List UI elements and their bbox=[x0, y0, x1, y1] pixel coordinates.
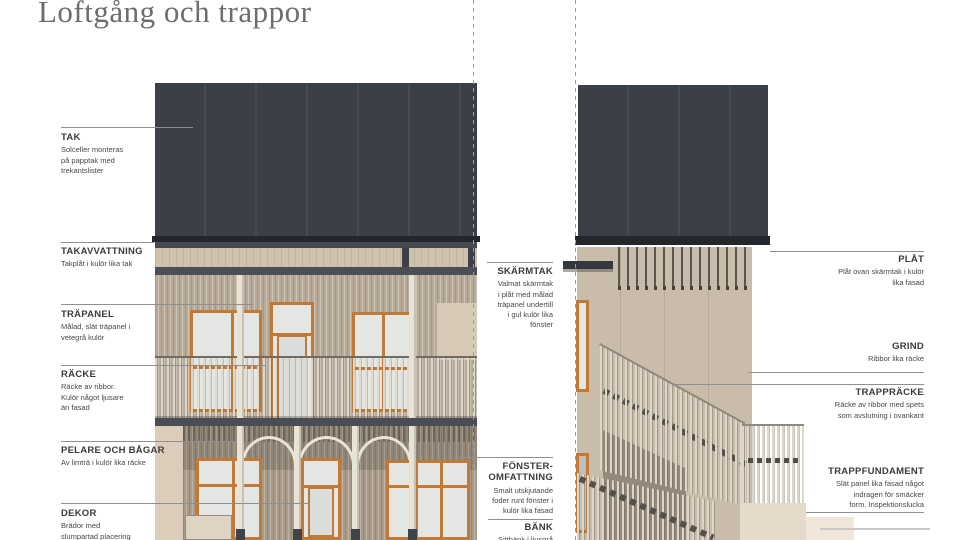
leader-line-grind bbox=[748, 372, 924, 373]
door-at-section-cut bbox=[576, 300, 589, 392]
annotation-desc: Räcke av ribbor med spets som avslutning… bbox=[770, 400, 924, 420]
annotation-label: BÄNK bbox=[425, 522, 553, 533]
leader-line-takavvattning bbox=[61, 242, 154, 243]
leader-line-tak bbox=[61, 127, 193, 128]
canopy-shadow bbox=[563, 269, 613, 272]
annotation-trappfundament: TRAPPFUNDAMENT Slät panel lika fasad någ… bbox=[770, 466, 924, 510]
annotation-pelare-och-bagar: PELARE OCH BÅGAR Av limträ i kulör lika … bbox=[61, 445, 201, 469]
leader-line-fonsteromfattning bbox=[458, 457, 553, 458]
annotation-desc: Målad, slät träpanel i vetegrå kulör bbox=[61, 322, 191, 342]
annotation-skarmtak: SKÄRMTAK Valmat skärmtak i plåt med måla… bbox=[425, 266, 553, 330]
annotation-label: TRÄPANEL bbox=[61, 309, 191, 320]
annotation-label: SKÄRMTAK bbox=[425, 266, 553, 277]
annotation-label: PLÅT bbox=[770, 254, 924, 265]
annotation-fonsteromfattning: FÖNSTER- OMFATTNING Smalt utskjutande fo… bbox=[425, 461, 553, 516]
left-fascia-band bbox=[155, 248, 477, 267]
annotation-grind: GRIND Ribbor lika räcke bbox=[770, 341, 924, 365]
annotation-desc: Sittbänk i ljusgrå bbox=[425, 535, 553, 540]
leader-line-racke bbox=[61, 365, 265, 366]
entrance-canopy-skarmtak bbox=[563, 261, 613, 269]
leader-line-trappracke bbox=[672, 384, 924, 385]
annotation-label: RÄCKE bbox=[61, 369, 191, 380]
pillar-base bbox=[408, 529, 417, 540]
leader-line-plat bbox=[770, 251, 924, 252]
leader-line-dekor bbox=[61, 503, 310, 504]
pillar-base bbox=[351, 529, 360, 540]
annotation-desc: Ribbor lika räcke bbox=[770, 354, 924, 364]
annotation-label: GRIND bbox=[770, 341, 924, 352]
window-muntin bbox=[232, 461, 235, 537]
leader-line-bank bbox=[488, 519, 553, 520]
annotation-trapanel: TRÄPANEL Målad, slät träpanel i vetegrå … bbox=[61, 309, 191, 343]
annotation-desc: Brädor med slumpartad placering bbox=[61, 521, 191, 540]
annotation-label: TAKAVVATTNING bbox=[61, 246, 191, 257]
annotation-racke: RÄCKE Räcke av ribbor. Kulör något ljusa… bbox=[61, 369, 191, 413]
annotation-label: FÖNSTER- OMFATTNING bbox=[425, 461, 553, 484]
annotation-label: PELARE OCH BÅGAR bbox=[61, 445, 201, 456]
annotation-trappracke: TRAPPRÄCKE Räcke av ribbor med spets som… bbox=[770, 387, 924, 421]
leader-line-trapanel bbox=[61, 304, 253, 305]
pillar-base bbox=[293, 529, 302, 540]
leader-line-pelare bbox=[61, 441, 237, 442]
annotation-label: TAK bbox=[61, 132, 191, 143]
pillar bbox=[237, 275, 244, 418]
fascia-notch bbox=[402, 248, 409, 267]
annotation-label: DEKOR bbox=[61, 508, 191, 519]
left-roof bbox=[155, 83, 477, 236]
annotation-desc: Plåt ovan skärmtak i kulör lika fasad bbox=[770, 267, 924, 287]
annotation-desc: Av limträ i kulör lika räcke bbox=[61, 458, 201, 468]
leader-line-trappfundament bbox=[806, 512, 924, 513]
leader-line-skarmtak bbox=[487, 262, 553, 263]
annotation-desc: Smalt utskjutande foder runt fönster i k… bbox=[425, 486, 553, 516]
annotation-label: TRAPPRÄCKE bbox=[770, 387, 924, 398]
annotation-dekor: DEKOR Brädor med slumpartad placering bbox=[61, 508, 191, 540]
ground-line bbox=[820, 528, 930, 530]
annotation-desc: Slät panel lika fasad något indragen för… bbox=[770, 479, 924, 509]
annotation-desc: Räcke av ribbor. Kulör något ljusare än … bbox=[61, 382, 191, 412]
annotation-takavvattning: TAKAVVATTNING Takplåt i kulör lika tak bbox=[61, 246, 191, 270]
right-roof-edge bbox=[575, 236, 770, 245]
section-cut-line bbox=[575, 0, 576, 540]
window-muntin bbox=[199, 484, 259, 487]
annotation-tak: TAK Solceller monteras på papptak med tr… bbox=[61, 132, 191, 176]
utility-box bbox=[185, 515, 232, 540]
right-roof bbox=[578, 85, 768, 236]
pillar-base bbox=[236, 529, 245, 540]
door-leaf bbox=[308, 487, 334, 537]
annotation-plat: PLÅT Plåt ovan skärmtak i kulör lika fas… bbox=[770, 254, 924, 288]
page-title: Loftgång och trappor bbox=[38, 0, 311, 30]
hanging-slats-dekor bbox=[618, 247, 752, 289]
elevation-drawing-page: Loftgång och trappor bbox=[0, 0, 960, 540]
slat-tips bbox=[618, 286, 752, 290]
annotation-desc: Takplåt i kulör lika tak bbox=[61, 259, 191, 269]
annotation-desc: Solceller monteras på papptak med trekan… bbox=[61, 145, 191, 175]
pillar bbox=[409, 275, 416, 418]
pillar bbox=[294, 426, 301, 540]
annotation-label: TRAPPFUNDAMENT bbox=[770, 466, 924, 477]
pillar bbox=[237, 426, 244, 540]
annotation-desc: Valmat skärmtak i plåt med målad träpane… bbox=[425, 279, 553, 330]
door-lower bbox=[301, 458, 341, 540]
pillar bbox=[409, 426, 416, 540]
pillar bbox=[352, 426, 359, 540]
loftgang-slab bbox=[155, 418, 477, 426]
gate-latch-dashes bbox=[748, 458, 800, 463]
annotation-bank: BÄNK Sittbänk i ljusgrå bbox=[425, 522, 553, 540]
